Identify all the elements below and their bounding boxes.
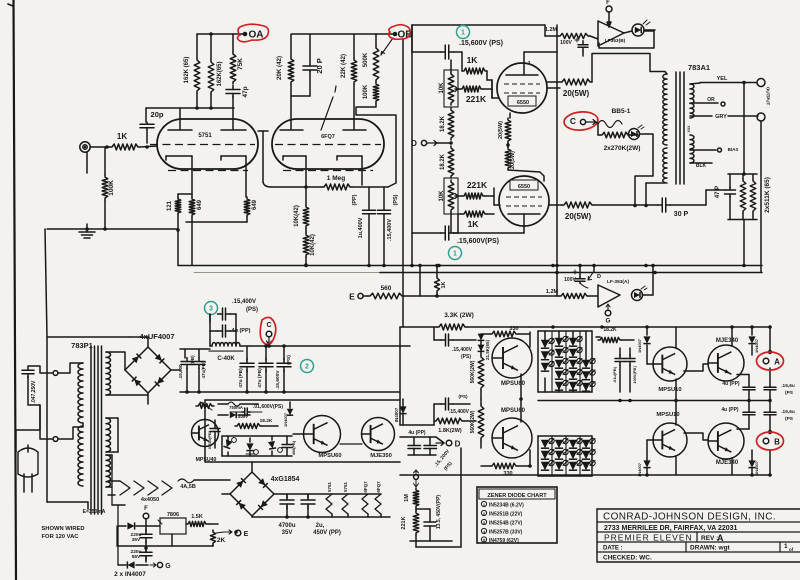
svg-text:47u(PB): 47u(PB): [201, 361, 206, 379]
svg-text:221K: 221K: [401, 516, 407, 529]
svg-text:18.2K: 18.2K: [603, 327, 617, 333]
svg-text:400(PB): 400(PB): [292, 440, 296, 455]
svg-text:1M: 1M: [404, 494, 410, 502]
svg-text:(PS: (PS: [785, 390, 794, 396]
svg-text:LF353(B): LF353(B): [605, 38, 626, 44]
svg-text:E=350mA: E=350mA: [83, 509, 106, 515]
svg-text:A: A: [717, 533, 724, 543]
svg-text:100V(PB): 100V(PB): [632, 366, 637, 384]
svg-text:G: G: [605, 318, 610, 325]
svg-text:1: 1: [461, 30, 465, 37]
svg-text:C: C: [570, 116, 576, 126]
svg-text:1N4007: 1N4007: [754, 338, 759, 353]
svg-text:1K: 1K: [467, 55, 479, 65]
svg-text:.15,400V: .15,400V: [387, 219, 393, 241]
svg-text:649: 649: [197, 199, 203, 210]
svg-text:6FQ7: 6FQ7: [363, 481, 368, 493]
svg-text:D: D: [597, 274, 601, 280]
svg-text:20 P: 20 P: [315, 58, 324, 73]
svg-text:IN5257B (33V): IN5257B (33V): [489, 530, 523, 536]
svg-text:3.3K (2W): 3.3K (2W): [444, 312, 474, 319]
svg-text:3: 3: [209, 306, 213, 313]
svg-text:2733 MERRILEE DR, FAIRFAX, VA: 2733 MERRILEE DR, FAIRFAX, VA 22031: [604, 525, 738, 532]
svg-text:.15,600V (PS): .15,600V (PS): [459, 40, 503, 47]
svg-text:MPSU60: MPSU60: [501, 408, 526, 414]
svg-text:CONRAD-JOHNSON DESIGN, INC.: CONRAD-JOHNSON DESIGN, INC.: [603, 512, 776, 523]
svg-text:.047,250V: .047,250V: [31, 380, 37, 403]
svg-text:2 x IN4007: 2 x IN4007: [114, 571, 146, 578]
svg-text:20(5W): 20(5W): [563, 89, 590, 98]
svg-text:BIAS: BIAS: [728, 147, 739, 152]
svg-text:FOR 120 VAC: FOR 120 VAC: [42, 534, 80, 540]
svg-text:20(5W): 20(5W): [510, 151, 516, 169]
svg-text:1.5K: 1.5K: [191, 514, 203, 520]
svg-text:649: 649: [252, 199, 258, 210]
svg-text:LF-353(A): LF-353(A): [607, 279, 630, 285]
svg-text:A: A: [774, 358, 780, 367]
svg-text:1: 1: [784, 543, 788, 550]
svg-text:4700u: 4700u: [278, 523, 295, 529]
svg-text:MPSU40: MPSU40: [196, 457, 217, 463]
svg-text:MPSU60: MPSU60: [501, 381, 526, 387]
svg-text:5751: 5751: [343, 481, 348, 492]
svg-text:4u (PP): 4u (PP): [722, 381, 740, 387]
svg-text:450V (PP): 450V (PP): [313, 530, 341, 536]
svg-text:1N4007: 1N4007: [637, 338, 642, 353]
svg-text:35V: 35V: [132, 537, 141, 543]
svg-text:C: C: [266, 322, 271, 329]
svg-text:.15,600V(PS): .15,600V(PS): [457, 238, 499, 245]
svg-text:5751: 5751: [327, 481, 332, 492]
svg-text:SHOWN WIRED: SHOWN WIRED: [41, 526, 84, 532]
svg-text:1K: 1K: [468, 219, 480, 229]
svg-text:18.2K: 18.2K: [260, 418, 273, 424]
svg-text:47 P: 47 P: [715, 186, 721, 198]
svg-text:(PB): (PB): [190, 355, 195, 365]
svg-text:(PS): (PS): [459, 394, 469, 399]
svg-text:CHECKED: WC.: CHECKED: WC.: [603, 555, 652, 562]
svg-text:.15,6u: .15,6u: [781, 409, 795, 415]
svg-text:18.2K: 18.2K: [440, 153, 446, 170]
svg-text:22K (42): 22K (42): [340, 54, 347, 78]
svg-text:(PS): (PS): [246, 307, 258, 313]
svg-text:G: G: [165, 563, 171, 570]
svg-text:B: B: [774, 438, 780, 447]
svg-text:.15,6u: .15,6u: [781, 383, 795, 389]
svg-text:(PS): (PS): [461, 354, 471, 360]
svg-text:MJE340: MJE340: [716, 460, 739, 466]
svg-text:PREMIER ELEVEN: PREMIER ELEVEN: [604, 533, 693, 543]
svg-text:100K: 100K: [363, 84, 369, 99]
svg-text:4u (PP): 4u (PP): [721, 407, 739, 413]
svg-text:D: D: [455, 440, 461, 449]
svg-text:4xG1854: 4xG1854: [271, 476, 300, 483]
svg-text:2x270K(2W): 2x270K(2W): [604, 145, 641, 152]
svg-text:DATE :: DATE :: [603, 546, 623, 552]
svg-text:E: E: [244, 531, 249, 538]
svg-text:6550: 6550: [517, 100, 529, 106]
svg-text:783P1: 783P1: [71, 341, 93, 350]
svg-text:1K: 1K: [117, 132, 127, 141]
svg-text:6FQ7: 6FQ7: [321, 134, 335, 140]
svg-text:MJE340: MJE340: [716, 338, 739, 344]
svg-text:13.5, 450V(PP): 13.5, 450V(PP): [436, 495, 442, 530]
svg-text:221K: 221K: [466, 94, 487, 104]
svg-text:.15,600V: .15,600V: [275, 370, 281, 390]
svg-text:221K: 221K: [467, 180, 488, 190]
svg-text:21.5K(65): 21.5K(65): [485, 339, 490, 360]
svg-text:20p: 20p: [151, 110, 164, 119]
svg-text:1: 1: [453, 251, 457, 258]
svg-text:2x511K (65): 2x511K (65): [764, 177, 771, 213]
svg-text:30 P: 30 P: [674, 211, 689, 218]
svg-text:ZENER DIODE CHART: ZENER DIODE CHART: [487, 493, 547, 499]
svg-text:20(5W): 20(5W): [565, 212, 592, 221]
svg-text:IN4007: IN4007: [394, 407, 399, 422]
svg-text:OR: OR: [707, 97, 715, 103]
svg-text:IN5251B (22V): IN5251B (22V): [489, 512, 523, 518]
svg-text:10K(42): 10K(42): [294, 205, 300, 227]
svg-text:.15,400V: .15,400V: [232, 299, 256, 305]
svg-text:330: 330: [509, 326, 518, 332]
svg-text:F: F: [606, 0, 610, 6]
svg-text:10K(42): 10K(42): [310, 234, 316, 256]
svg-text:100V: 100V: [564, 277, 576, 283]
svg-text:20K (42): 20K (42): [276, 56, 283, 80]
svg-text:1N4007: 1N4007: [283, 412, 288, 427]
svg-text:REV :: REV :: [701, 535, 718, 542]
svg-text:of: of: [789, 547, 794, 552]
svg-text:100K: 100K: [108, 180, 115, 196]
svg-text:560K(2W): 560K(2W): [470, 410, 476, 433]
svg-text:.15,600: .15,600: [178, 364, 183, 380]
svg-text:750mA: 750mA: [229, 405, 243, 410]
svg-text:500K: 500K: [363, 52, 369, 67]
svg-text:2u,: 2u,: [316, 523, 325, 529]
svg-text:121: 121: [167, 200, 173, 211]
svg-text:F: F: [144, 506, 148, 512]
svg-text:47p: 47p: [242, 86, 249, 97]
svg-text:75K: 75K: [237, 58, 244, 70]
svg-text:55V: 55V: [132, 554, 141, 560]
svg-text:C-40K: C-40K: [217, 356, 235, 362]
svg-text:YEL: YEL: [717, 76, 728, 82]
svg-text:(PP): (PP): [352, 194, 358, 205]
svg-text:560K(2W): 560K(2W): [470, 360, 476, 383]
svg-text:4x4050: 4x4050: [141, 497, 159, 503]
svg-text:MPSU60: MPSU60: [318, 453, 341, 459]
svg-text:100V: 100V: [560, 40, 572, 46]
svg-text:MPSU10: MPSU10: [658, 387, 681, 393]
svg-text:35V: 35V: [282, 530, 293, 536]
svg-text:(PS): (PS): [286, 355, 292, 365]
svg-text:18.2K: 18.2K: [440, 115, 446, 132]
svg-text:1K: 1K: [441, 281, 447, 288]
svg-text:7806: 7806: [167, 512, 179, 518]
svg-text:BLK: BLK: [696, 163, 707, 169]
svg-text:783A1: 783A1: [688, 63, 710, 72]
svg-text:DRAWN: wgt: DRAWN: wgt: [690, 545, 731, 552]
svg-text:1N4007: 1N4007: [754, 460, 759, 475]
svg-text:4u (PP): 4u (PP): [408, 430, 426, 436]
svg-text:.01u(PB): .01u(PB): [612, 366, 617, 383]
svg-text:6FQ7: 6FQ7: [376, 481, 381, 493]
svg-text:(PS: (PS: [785, 416, 794, 422]
svg-text:.15,400V: .15,400V: [452, 347, 473, 353]
svg-text:.15,400V: .15,400V: [449, 409, 470, 415]
svg-text:IN5234B (6.2V): IN5234B (6.2V): [489, 503, 524, 509]
svg-text:162K (65): 162K (65): [184, 57, 190, 84]
svg-text:IN5254B (27V): IN5254B (27V): [489, 521, 523, 527]
svg-text:1.2M: 1.2M: [545, 27, 558, 33]
svg-text:IN4759 (62V): IN4759 (62V): [489, 538, 519, 544]
svg-text:GRY: GRY: [715, 114, 727, 120]
svg-text:6550: 6550: [518, 184, 530, 190]
svg-text:162K(65): 162K(65): [217, 61, 223, 86]
svg-text:E: E: [349, 292, 355, 302]
svg-text:47u (PB): 47u (PB): [238, 368, 244, 388]
svg-text:2K: 2K: [217, 537, 226, 544]
svg-text:1 Meg: 1 Meg: [327, 175, 345, 182]
svg-text:OUTPUT: OUTPUT: [766, 87, 771, 106]
svg-text:XXX: XXX: [687, 125, 691, 133]
svg-text:(PS): (PS): [393, 194, 399, 205]
svg-text:BB5-1: BB5-1: [612, 108, 631, 115]
svg-text:20(5W): 20(5W): [498, 121, 504, 139]
svg-text:560: 560: [381, 285, 392, 292]
svg-text:2: 2: [305, 364, 309, 371]
svg-text:1.8K(2W): 1.8K(2W): [438, 428, 462, 434]
svg-text:MJE350: MJE350: [370, 453, 392, 459]
svg-text:.01,600V(PS): .01,600V(PS): [253, 404, 283, 410]
svg-text:4A,5B: 4A,5B: [180, 484, 196, 490]
svg-text:5751: 5751: [198, 133, 212, 139]
svg-text:1u,400V: 1u,400V: [358, 217, 364, 238]
svg-text:330: 330: [503, 471, 512, 477]
svg-text:47u (PB): 47u (PB): [257, 368, 263, 388]
svg-text:1.2M: 1.2M: [546, 289, 559, 295]
